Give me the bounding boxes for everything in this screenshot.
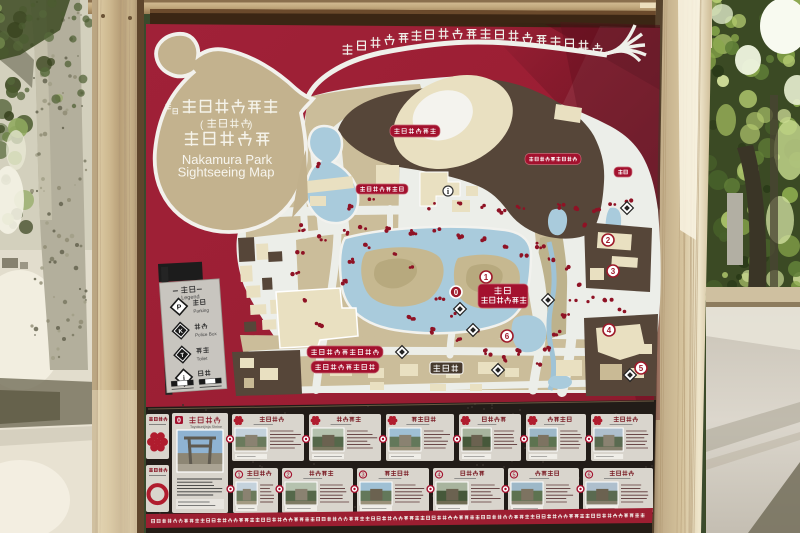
svg-text:Sightseeing Map: Sightseeing Map <box>178 165 275 180</box>
svg-text:4: 4 <box>437 473 440 479</box>
svg-text:1: 1 <box>237 473 240 479</box>
svg-text:): ) <box>249 120 252 131</box>
svg-text:6: 6 <box>587 473 590 479</box>
svg-text:0: 0 <box>177 418 181 425</box>
svg-text:0: 0 <box>454 288 459 297</box>
svg-text:2: 2 <box>286 473 289 479</box>
svg-text:6: 6 <box>505 332 510 341</box>
svg-text:2: 2 <box>606 236 611 245</box>
svg-text:1: 1 <box>484 273 489 282</box>
svg-text:4: 4 <box>607 326 612 335</box>
svg-text:Toyokunijinja Shrine: Toyokunijinja Shrine <box>190 425 222 429</box>
svg-text:3: 3 <box>361 473 364 479</box>
svg-text:Toilet: Toilet <box>197 356 209 362</box>
svg-text:P: P <box>177 304 182 311</box>
svg-text:5: 5 <box>639 364 644 373</box>
svg-text:5: 5 <box>512 473 515 479</box>
svg-text:3: 3 <box>611 267 616 276</box>
